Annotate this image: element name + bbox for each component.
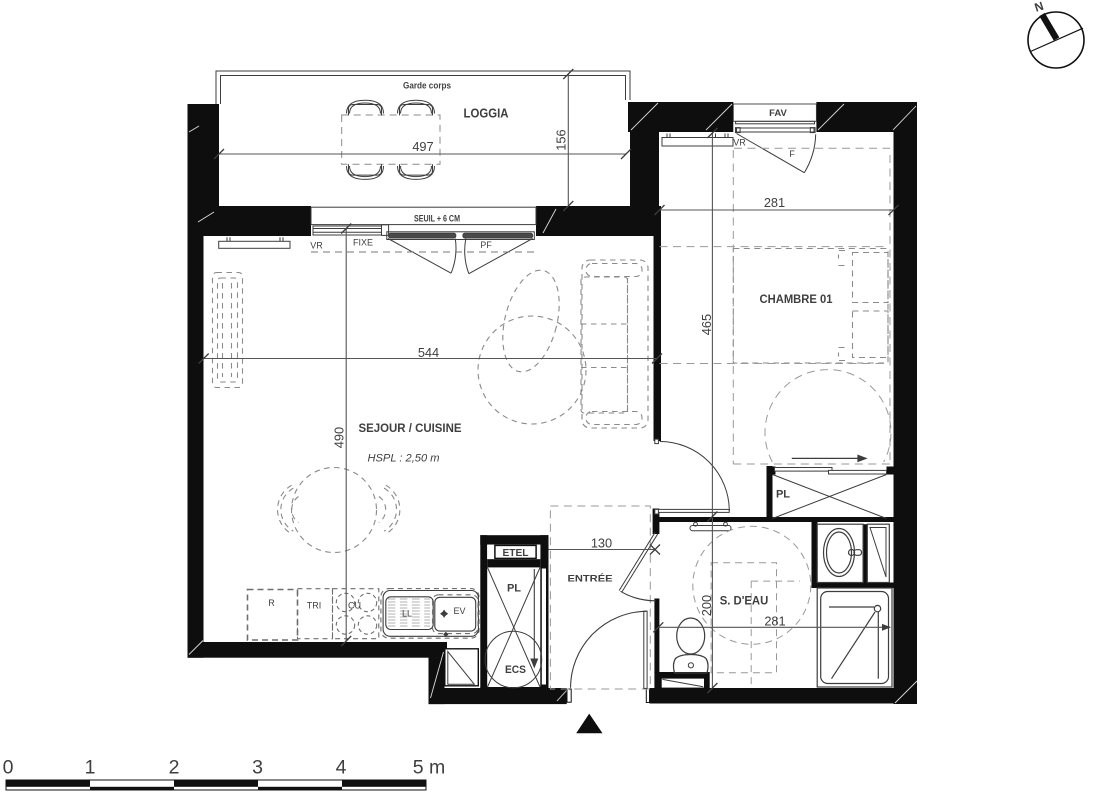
svg-text:FIXE: FIXE: [353, 238, 373, 248]
svg-text:5 m: 5 m: [413, 756, 446, 778]
svg-text:544: 544: [418, 345, 439, 360]
svg-text:ECS: ECS: [505, 664, 526, 676]
svg-text:281: 281: [764, 195, 785, 210]
svg-text:LOGGIA: LOGGIA: [464, 107, 509, 121]
svg-text:HSPL : 2,50 m: HSPL : 2,50 m: [368, 453, 440, 465]
svg-text:FAV: FAV: [769, 108, 787, 119]
svg-text:281: 281: [764, 614, 785, 629]
svg-text:497: 497: [412, 139, 433, 154]
svg-text:2: 2: [169, 756, 180, 778]
svg-text:S. D'EAU: S. D'EAU: [720, 594, 769, 608]
svg-text:VR: VR: [310, 241, 323, 251]
svg-text:PL: PL: [776, 489, 790, 501]
svg-text:490: 490: [332, 427, 347, 448]
svg-text:465: 465: [699, 314, 714, 335]
svg-text:SEUIL + 6 CM: SEUIL + 6 CM: [414, 214, 460, 225]
svg-text:ETEL: ETEL: [503, 548, 529, 559]
svg-text:PF: PF: [480, 240, 492, 250]
svg-text:0: 0: [3, 756, 14, 778]
svg-text:1: 1: [85, 756, 96, 778]
svg-text:3: 3: [252, 756, 263, 778]
svg-text:4: 4: [336, 756, 347, 778]
svg-text:LL: LL: [402, 609, 412, 619]
svg-text:ENTRÉE: ENTRÉE: [568, 574, 613, 585]
svg-text:TRI: TRI: [307, 601, 322, 611]
svg-text:130: 130: [591, 536, 612, 551]
svg-text:R: R: [268, 598, 275, 608]
svg-text:Garde corps: Garde corps: [403, 81, 451, 92]
svg-text:CU: CU: [348, 601, 361, 611]
svg-text:SEJOUR / CUISINE: SEJOUR / CUISINE: [359, 421, 462, 435]
svg-text:VR: VR: [733, 138, 746, 148]
svg-text:CHAMBRE 01: CHAMBRE 01: [760, 292, 833, 306]
svg-text:156: 156: [554, 129, 569, 150]
svg-text:200: 200: [699, 595, 714, 616]
svg-text:EV: EV: [453, 606, 465, 616]
svg-text:PL: PL: [507, 583, 521, 595]
svg-text:F: F: [789, 149, 795, 159]
